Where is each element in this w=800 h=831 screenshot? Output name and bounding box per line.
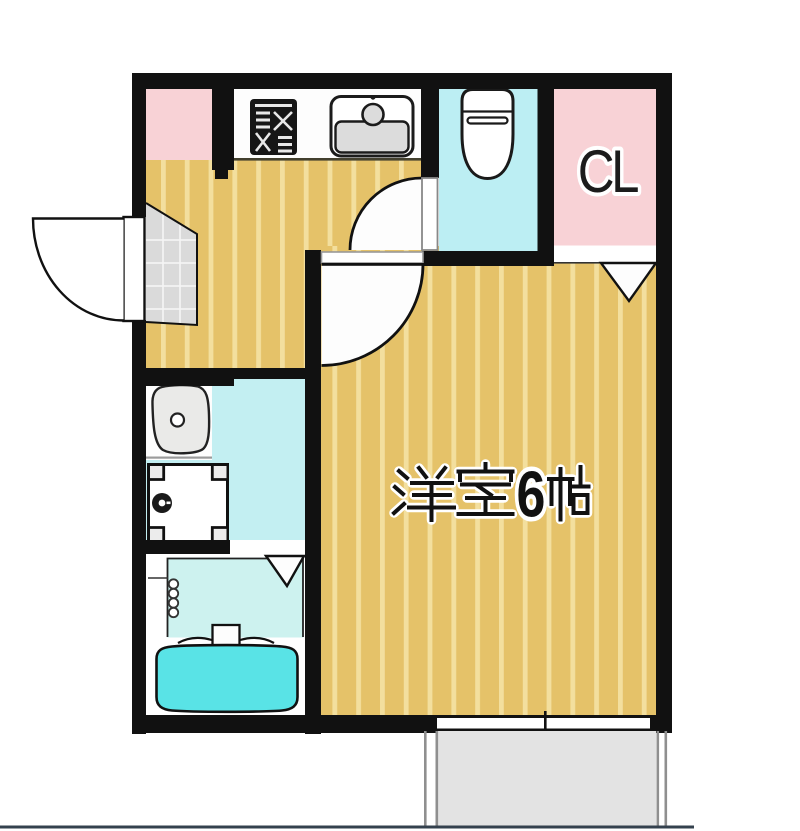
svg-text:CL: CL (578, 138, 639, 205)
svg-text:6: 6 (517, 459, 546, 531)
